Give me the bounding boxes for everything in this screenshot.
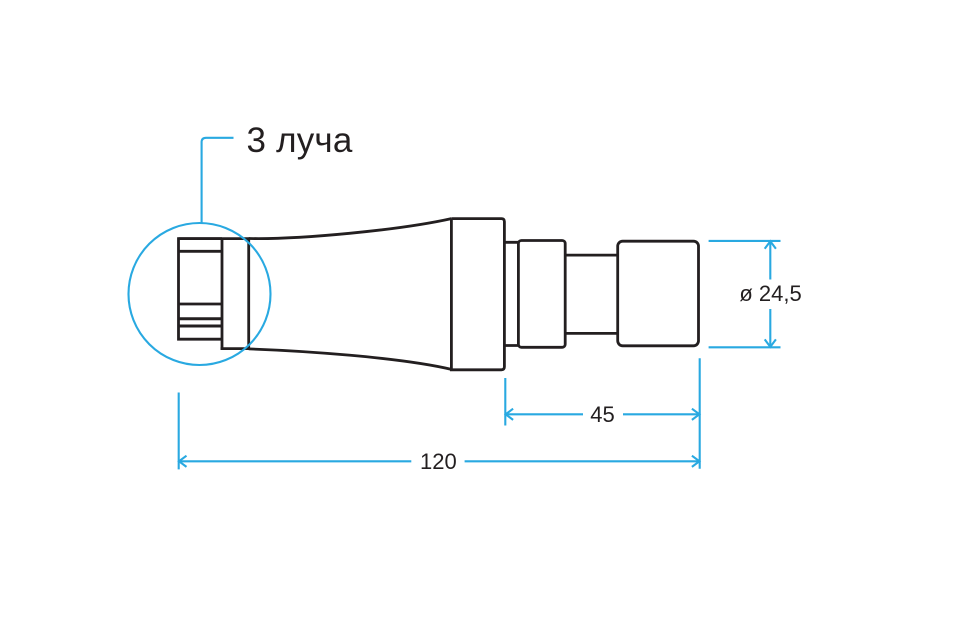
svg-text:ø 24,5: ø 24,5 xyxy=(739,281,801,306)
svg-text:3 луча: 3 луча xyxy=(247,121,353,160)
svg-text:120: 120 xyxy=(420,449,457,474)
svg-text:45: 45 xyxy=(590,402,614,427)
